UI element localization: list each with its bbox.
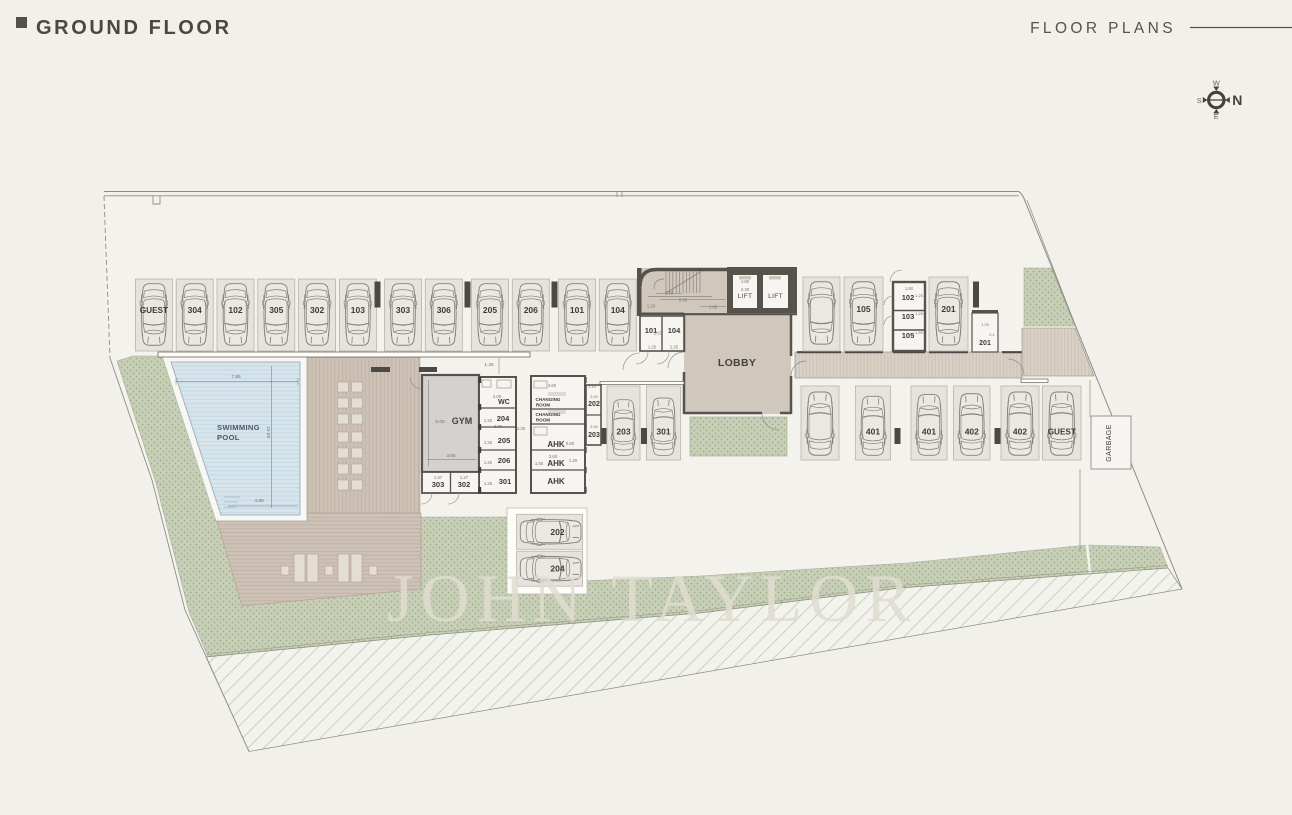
svg-text:1.25: 1.25 [981, 322, 990, 327]
svg-text:105: 105 [856, 304, 870, 314]
svg-text:GROUND FLOOR: GROUND FLOOR [36, 17, 232, 39]
svg-text:2.1: 2.1 [989, 332, 995, 337]
svg-text:3.60: 3.60 [548, 383, 557, 388]
svg-text:206: 206 [498, 456, 511, 465]
svg-text:306: 306 [437, 305, 451, 315]
svg-text:102: 102 [228, 305, 242, 315]
svg-text:GUEST: GUEST [140, 306, 168, 315]
svg-text:202: 202 [550, 527, 564, 537]
svg-text:1.10: 1.10 [588, 384, 597, 389]
svg-text:303: 303 [432, 480, 445, 489]
svg-text:GYM: GYM [452, 416, 473, 426]
svg-text:205: 205 [483, 305, 497, 315]
svg-text:302: 302 [310, 305, 324, 315]
svg-text:CHANGING: CHANGING [535, 397, 560, 402]
svg-text:4.88: 4.88 [254, 498, 264, 504]
svg-text:1.25: 1.25 [484, 440, 493, 445]
svg-text:2.20: 2.20 [654, 331, 663, 336]
svg-text:2.00: 2.00 [493, 394, 502, 399]
svg-text:206: 206 [524, 305, 538, 315]
svg-text:304: 304 [188, 305, 202, 315]
svg-text:1.55: 1.55 [915, 330, 924, 335]
svg-text:SWIMMING: SWIMMING [217, 423, 260, 432]
svg-text:401: 401 [922, 427, 936, 437]
svg-text:3.60: 3.60 [549, 454, 558, 459]
svg-text:AHK: AHK [547, 440, 565, 449]
svg-text:JOHN TAYLOR: JOHN TAYLOR [387, 560, 918, 636]
svg-text:S: S [1197, 96, 1202, 105]
svg-text:103: 103 [902, 312, 915, 321]
svg-text:7.85: 7.85 [231, 374, 241, 380]
svg-text:1.95: 1.95 [709, 305, 718, 310]
svg-text:301: 301 [499, 477, 512, 486]
svg-text:LOBBY: LOBBY [718, 357, 756, 369]
svg-text:302: 302 [458, 480, 471, 489]
svg-text:105: 105 [902, 331, 915, 340]
svg-text:1.27: 1.27 [460, 475, 469, 480]
svg-text:AHK: AHK [547, 477, 565, 486]
svg-text:1.25: 1.25 [484, 481, 493, 486]
svg-text:E: E [1214, 112, 1219, 121]
svg-text:1.80: 1.80 [741, 279, 750, 284]
svg-text:2.30: 2.30 [741, 287, 750, 292]
svg-text:5.50: 5.50 [679, 298, 688, 303]
svg-text:301: 301 [656, 427, 670, 437]
svg-text:104: 104 [611, 305, 625, 315]
svg-text:N: N [1232, 92, 1242, 108]
svg-text:AHK: AHK [547, 459, 565, 468]
svg-text:1.55: 1.55 [535, 461, 544, 466]
svg-text:2.70: 2.70 [665, 291, 674, 296]
svg-text:1.37: 1.37 [434, 475, 443, 480]
svg-text:1.20: 1.20 [647, 304, 656, 309]
svg-text:104: 104 [668, 326, 681, 335]
svg-text:FLOOR PLANS: FLOOR PLANS [1030, 20, 1176, 37]
svg-text:ROOM: ROOM [536, 403, 550, 408]
svg-text:305: 305 [269, 305, 283, 315]
svg-text:1.20: 1.20 [569, 458, 578, 463]
svg-text:LIFT: LIFT [768, 293, 783, 300]
svg-text:1.20: 1.20 [484, 460, 493, 465]
svg-text:W: W [1213, 79, 1221, 88]
svg-text:1.25: 1.25 [648, 345, 657, 350]
svg-text:1.25: 1.25 [484, 418, 493, 423]
svg-text:204: 204 [497, 414, 510, 423]
svg-text:402: 402 [965, 427, 979, 437]
svg-text:402: 402 [1013, 427, 1027, 437]
svg-text:10.08: 10.08 [265, 426, 271, 438]
svg-text:GUEST: GUEST [1048, 428, 1076, 437]
svg-text:LIFT: LIFT [738, 293, 753, 300]
svg-text:6.00: 6.00 [435, 419, 445, 425]
svg-text:203: 203 [588, 432, 600, 439]
svg-text:WC: WC [498, 399, 510, 406]
svg-text:1.25: 1.25 [670, 345, 679, 350]
svg-text:1.30: 1.30 [517, 426, 526, 431]
svg-text:1.25: 1.25 [915, 311, 924, 316]
svg-text:103: 103 [351, 305, 365, 315]
svg-text:205: 205 [498, 436, 511, 445]
svg-text:GARBAGE: GARBAGE [1106, 424, 1113, 461]
svg-text:202: 202 [588, 401, 600, 408]
svg-text:POOL: POOL [217, 433, 240, 442]
svg-text:0.60: 0.60 [566, 441, 575, 446]
svg-text:102: 102 [902, 293, 915, 302]
svg-text:2.00: 2.00 [494, 424, 503, 429]
svg-text:203: 203 [616, 427, 630, 437]
svg-text:2.00: 2.00 [590, 394, 599, 399]
svg-text:1.25: 1.25 [915, 293, 924, 298]
svg-text:201: 201 [979, 340, 991, 347]
svg-text:1.25: 1.25 [484, 362, 494, 368]
svg-text:2.00: 2.00 [590, 424, 599, 429]
svg-text:201: 201 [941, 304, 955, 314]
svg-text:1.60: 1.60 [905, 286, 914, 291]
svg-text:3.65: 3.65 [446, 453, 456, 459]
svg-text:401: 401 [866, 427, 880, 437]
svg-text:ROOM: ROOM [536, 418, 550, 423]
svg-text:101: 101 [570, 305, 584, 315]
svg-text:303: 303 [396, 305, 410, 315]
